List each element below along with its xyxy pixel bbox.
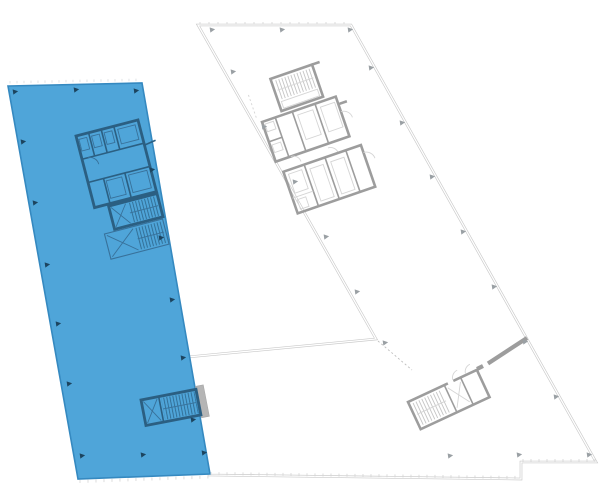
selected-floor xyxy=(8,83,210,479)
adjacent-floor-shape[interactable] xyxy=(188,25,596,479)
floor-plan-canvas xyxy=(0,0,600,500)
adjacent-floor xyxy=(188,25,596,479)
